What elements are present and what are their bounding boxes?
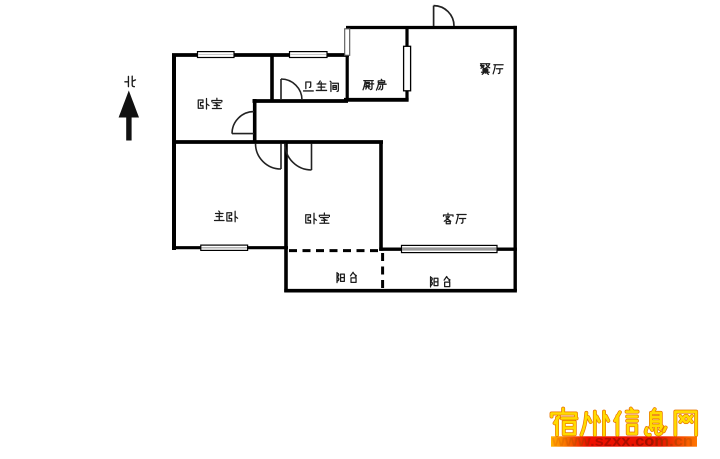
svg-text:www.szxx.com.cn: www.szxx.com.cn: [551, 434, 693, 450]
